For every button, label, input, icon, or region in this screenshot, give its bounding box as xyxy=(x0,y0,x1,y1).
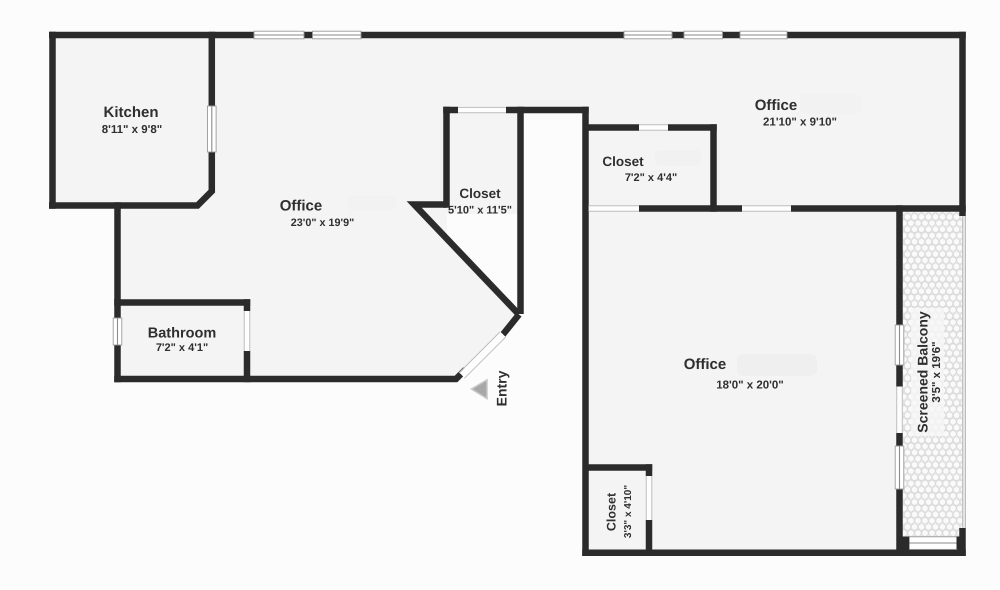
svg-text:Screened Balcony: Screened Balcony xyxy=(915,311,931,433)
svg-text:8'11" x 9'8": 8'11" x 9'8" xyxy=(102,124,163,136)
svg-text:7'2" x 4'4": 7'2" x 4'4" xyxy=(625,172,677,184)
svg-text:Kitchen: Kitchen xyxy=(103,104,158,121)
svg-text:18'0" x 20'0": 18'0" x 20'0" xyxy=(716,380,784,392)
svg-text:Closet: Closet xyxy=(459,186,501,201)
svg-text:Office: Office xyxy=(755,97,798,114)
svg-text:Entry: Entry xyxy=(494,370,510,406)
svg-text:7'2" x 4'1": 7'2" x 4'1" xyxy=(156,342,208,354)
svg-text:Closet: Closet xyxy=(602,154,644,169)
svg-text:Closet: Closet xyxy=(605,492,619,531)
svg-text:Bathroom: Bathroom xyxy=(148,326,216,342)
svg-text:3'5" x 19'6": 3'5" x 19'6" xyxy=(931,341,943,402)
svg-text:3'3" x 4'10": 3'3" x 4'10" xyxy=(623,485,634,538)
svg-text:Office: Office xyxy=(280,198,323,215)
svg-text:5'10" x 11'5": 5'10" x 11'5" xyxy=(448,205,512,217)
svg-text:23'0" x 19'9": 23'0" x 19'9" xyxy=(291,217,354,229)
svg-text:Office: Office xyxy=(684,356,727,373)
svg-text:21'10" x 9'10": 21'10" x 9'10" xyxy=(763,117,837,129)
